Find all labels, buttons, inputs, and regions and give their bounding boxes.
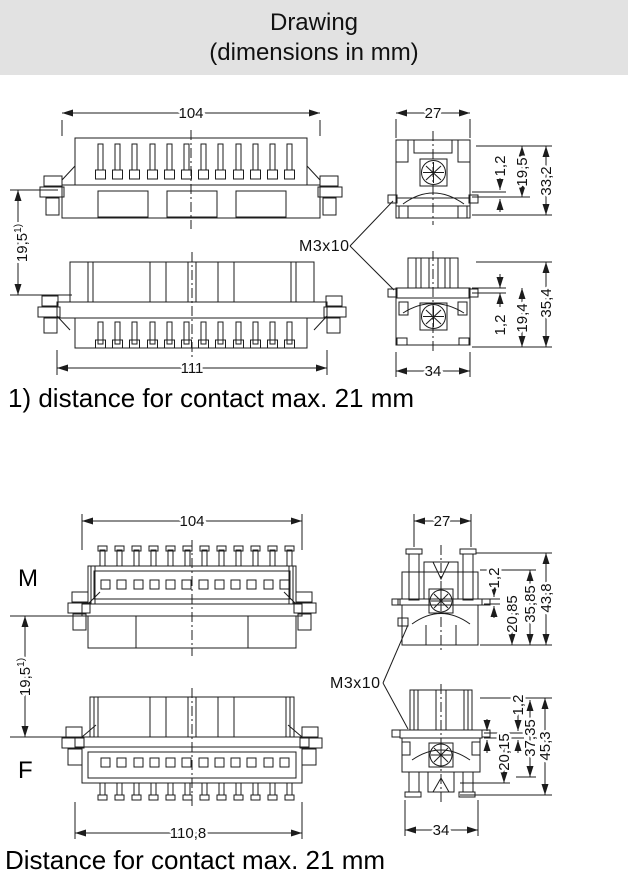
dim-upper-face-distance: 19,51) <box>13 224 31 262</box>
dim-value: 19,5 <box>14 233 31 262</box>
dim-note-ref: 1) <box>16 658 27 667</box>
upper-dimensions: 104 111 19,51) M3x10 27 1,2 19,5 33,2 <box>10 105 555 380</box>
dim-lower-110-8: 110,8 <box>170 825 206 842</box>
dim-upper-side-bottom-35-4: 35,4 <box>538 288 555 317</box>
upper-side-view-bottom <box>388 251 478 351</box>
female-label: F <box>18 757 33 784</box>
thread-label-lower: M3x10 <box>330 675 381 692</box>
dim-lower-104: 104 <box>179 513 204 530</box>
drawing-page: Drawing (dimensions in mm) <box>0 0 628 891</box>
dim-note-ref: 1) <box>13 224 24 233</box>
dim-lower-34: 34 <box>433 822 450 839</box>
dim-upper-27: 27 <box>425 105 442 122</box>
note-lower: Distance for contact max. 21 mm <box>5 845 385 876</box>
lower-female-view <box>62 688 322 806</box>
note-upper: 1) distance for contact max. 21 mm <box>8 383 414 414</box>
dim-upper-side-bottom-19-4: 19,4 <box>514 303 531 332</box>
dim-upper-104: 104 <box>178 105 203 122</box>
dim-lower-side-top-35-85: 35,85 <box>522 585 539 623</box>
dim-upper-side-top-33-2: 33,2 <box>538 166 555 195</box>
dim-lower-27: 27 <box>434 513 451 530</box>
dim-lower-side-top-20-85: 20,85 <box>504 595 521 633</box>
technical-drawing: 104 111 19,51) M3x10 27 1,2 19,5 33,2 <box>0 0 628 891</box>
upper-side-view-top <box>388 131 478 225</box>
dim-upper-side-top-19-5: 19,5 <box>514 157 531 186</box>
lower-side-view-top <box>392 545 490 652</box>
lower-side-view-bottom <box>392 684 490 802</box>
dim-lower-side-top-1-2: 1,2 <box>486 568 503 589</box>
male-label: M <box>18 565 38 592</box>
dim-lower-side-bottom-1-2: 1,2 <box>510 695 527 716</box>
dim-lower-side-bottom-45-3: 45,3 <box>537 731 554 760</box>
dim-lower-side-top-43-8: 43,8 <box>538 583 555 612</box>
thread-label-upper: M3x10 <box>299 238 350 255</box>
dim-lower-face-distance: 19,51) <box>16 658 34 696</box>
dim-upper-34: 34 <box>425 363 442 380</box>
upper-bottom-view <box>38 252 346 358</box>
dim-value: 19,5 <box>17 667 34 696</box>
dim-lower-side-bottom-20-15: 20,15 <box>496 733 513 771</box>
dim-upper-side-top-1-2: 1,2 <box>492 156 509 177</box>
lower-male-view <box>68 540 316 656</box>
upper-front-view <box>40 130 342 229</box>
dim-upper-111: 111 <box>181 360 204 377</box>
dim-upper-side-bottom-1-2: 1,2 <box>492 315 509 336</box>
